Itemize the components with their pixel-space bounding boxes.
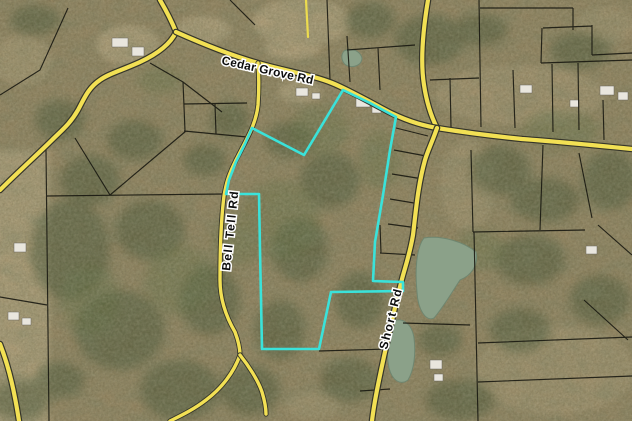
terrain-grain-light [0,0,632,421]
map-canvas[interactable]: Cedar Grove Rd Bell Tell Rd Short Rd [0,0,632,421]
aerial-imagery [0,0,632,421]
map-viewport[interactable]: Cedar Grove Rd Bell Tell Rd Short Rd [0,0,632,421]
